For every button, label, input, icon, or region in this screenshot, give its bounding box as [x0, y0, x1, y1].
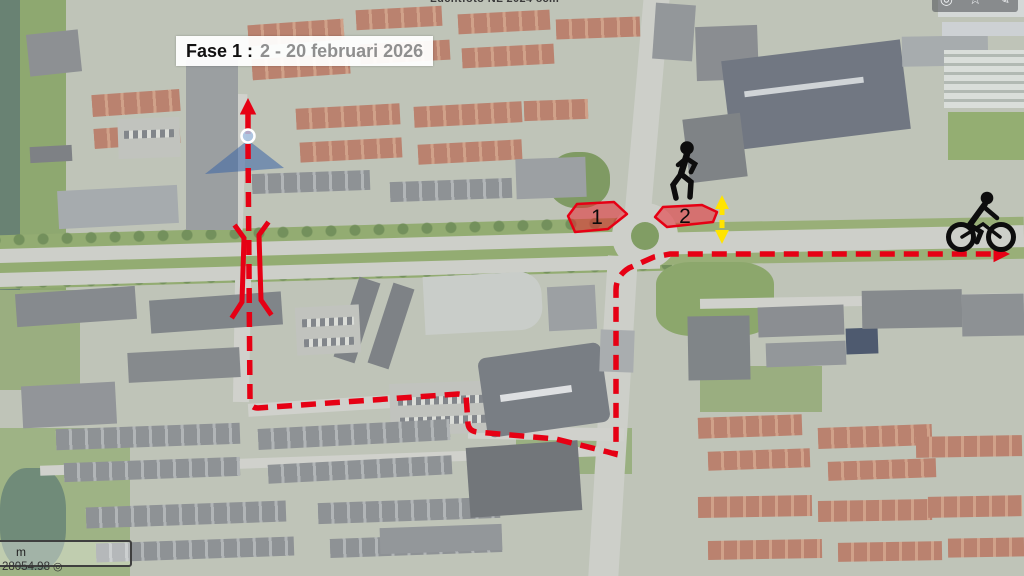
detour-route-line [248, 144, 996, 454]
view-cone [205, 140, 284, 174]
crosshair-icon: ◎ [53, 560, 63, 573]
coordinates-value: 28054.98 [2, 561, 50, 573]
coordinates-readout: 28054.98 ◎ [2, 560, 63, 573]
map-viewport[interactable]: 1 2 Luchtfoto NL 2024 8cm ◎ ☆ ✎ [0, 0, 1024, 576]
work-zone-1-label: 1 [591, 206, 603, 229]
phase-title-box: Fase 1 : 2 - 20 februari 2026 [176, 36, 433, 66]
map-toolbar: ◎ ☆ ✎ [932, 0, 1018, 12]
draw-icon[interactable]: ✎ [998, 0, 1011, 8]
work-zone-2-label: 2 [679, 205, 691, 228]
phase-label: Fase 1 : [186, 41, 253, 62]
cyclist-icon [949, 192, 1014, 250]
location-marker [242, 130, 255, 143]
favorite-icon[interactable]: ☆ [969, 0, 982, 8]
visibility-icon[interactable]: ◎ [940, 0, 953, 8]
phase-dates: 2 - 20 februari 2026 [260, 41, 423, 62]
scale-bar-label: m [16, 545, 26, 559]
pedestrian-icon [673, 141, 695, 198]
imagery-watermark: Luchtfoto NL 2024 8cm [430, 0, 559, 5]
annotations-overlay: 1 2 [0, 0, 1024, 576]
